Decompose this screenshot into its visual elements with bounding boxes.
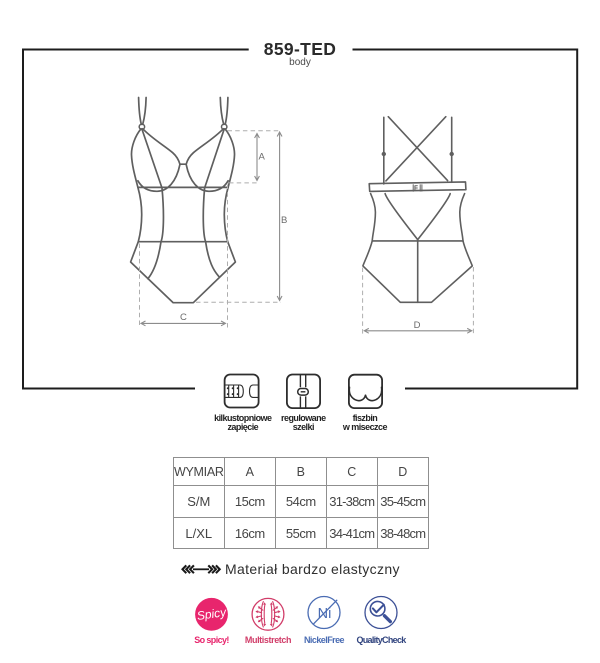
svg-text:A: A bbox=[259, 151, 266, 162]
svg-text:D: D bbox=[414, 320, 421, 331]
svg-text:B: B bbox=[281, 215, 287, 226]
svg-text:C: C bbox=[180, 312, 187, 323]
